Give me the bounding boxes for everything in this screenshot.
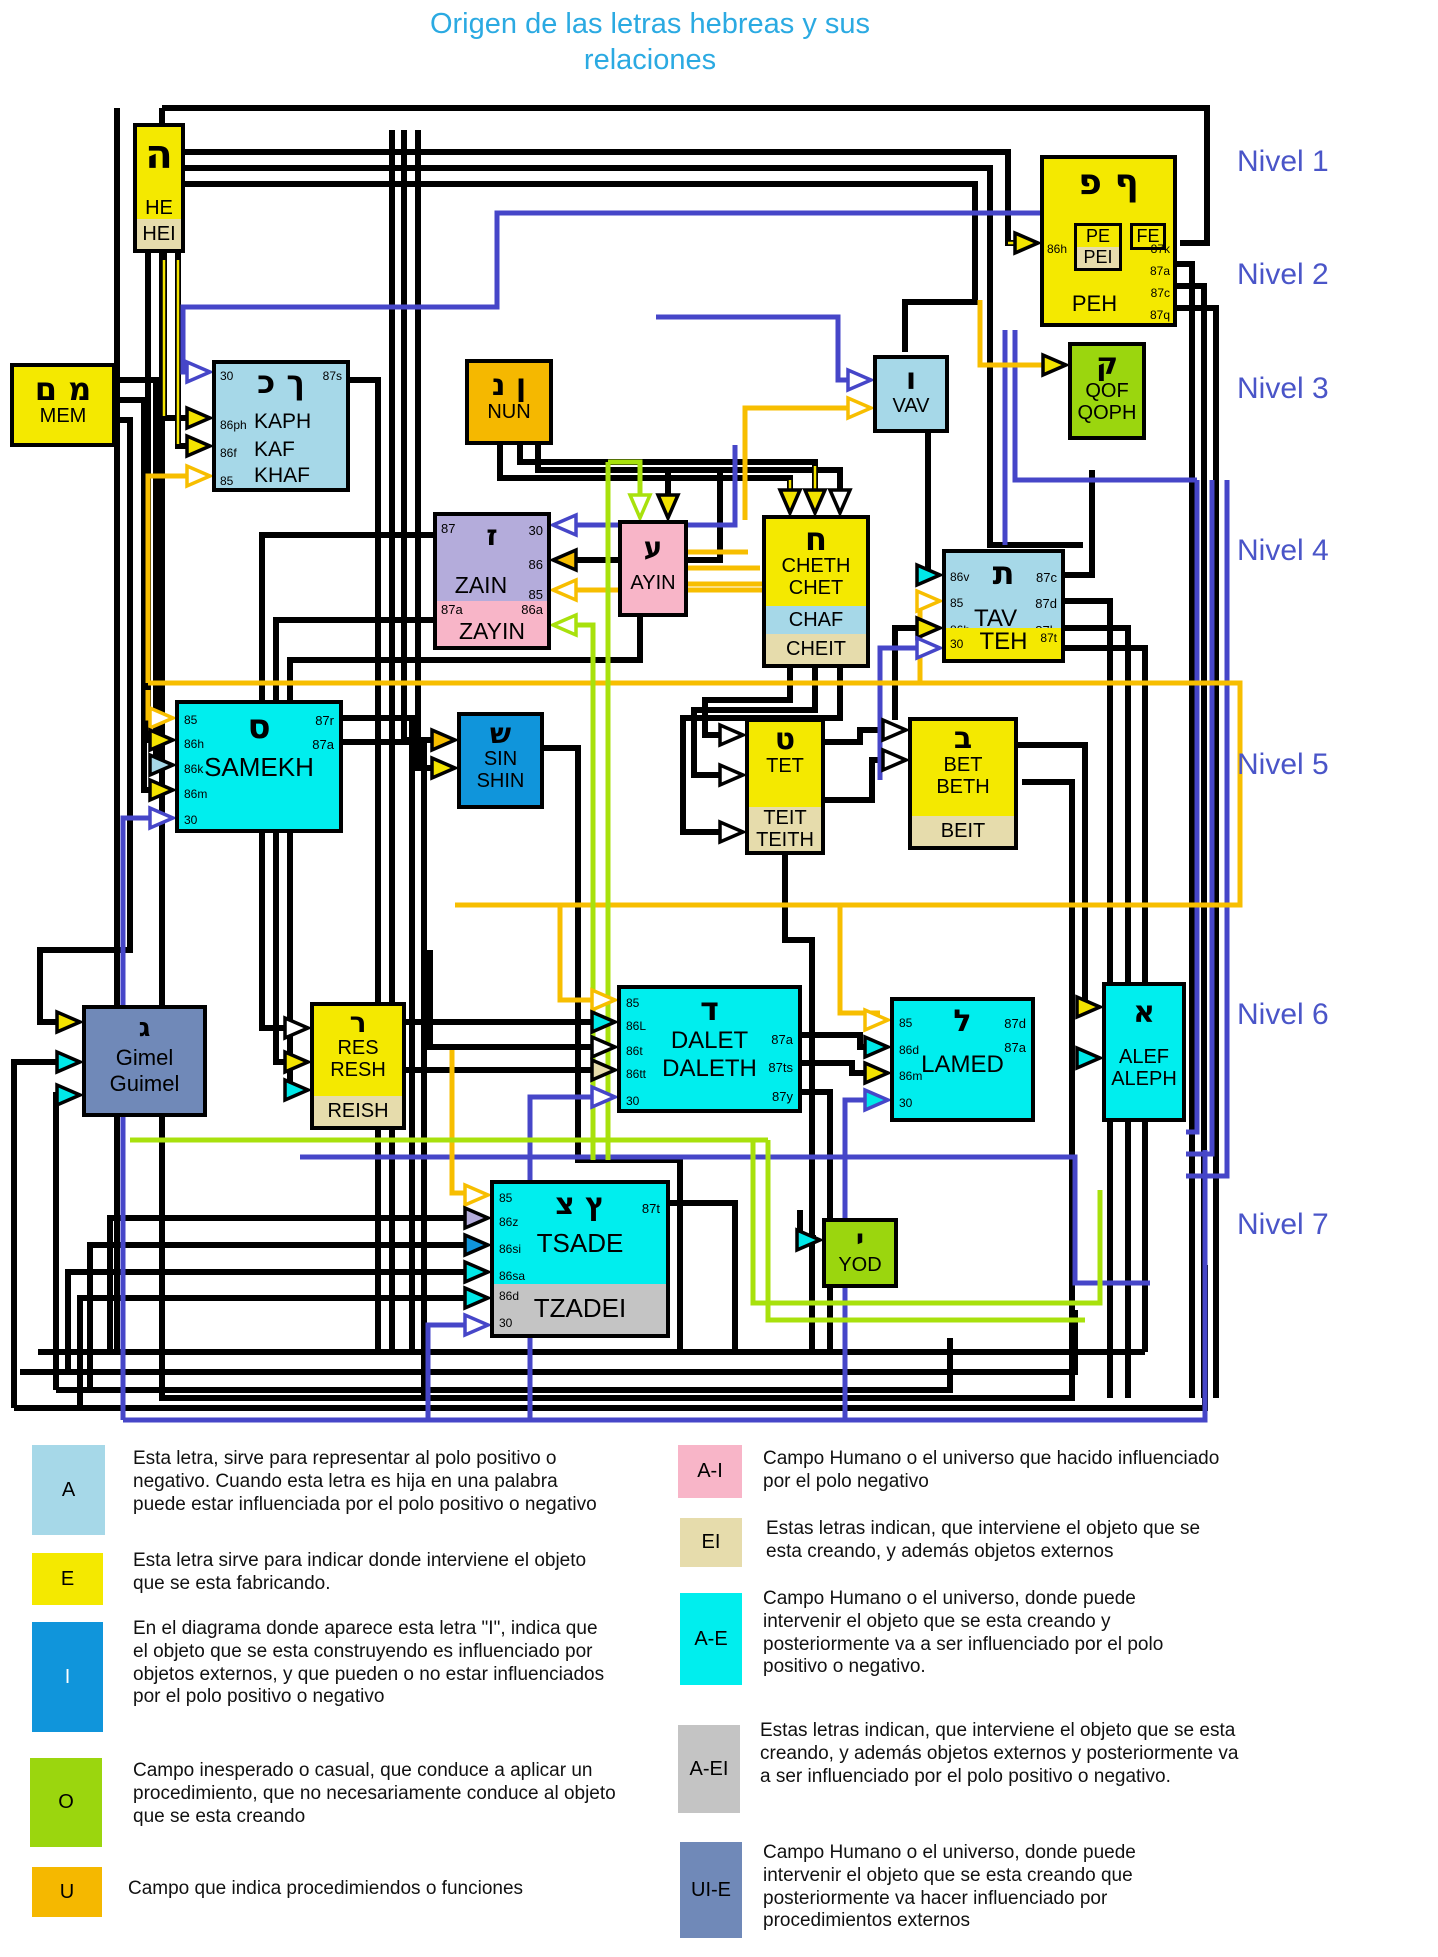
hebrew-letter-dalet: ד — [621, 989, 798, 1025]
hebrew-letter-res: ר — [314, 1006, 402, 1037]
wire-arrowhead — [805, 490, 825, 513]
hebrew-letters-tsade: צ ץ — [494, 1184, 666, 1220]
legend-key-uie: UI-E — [691, 1879, 731, 1902]
peh-output-87q: 87q — [1150, 309, 1170, 321]
wire-arrowhead — [720, 822, 743, 842]
box-tet: ט TET TEIT TEITH — [745, 718, 825, 855]
nun-name: NUN — [469, 401, 549, 423]
kaph-name-1: KAPH — [254, 410, 311, 434]
box-tav: 86v 85 86h ת TAV 87c 87d 87b 30 TEH 87t — [942, 549, 1065, 663]
box-bet: ב BET BETH BEIT — [908, 717, 1018, 850]
dalet-output-87ts: 87ts — [768, 1061, 793, 1074]
zain-output-87a: 87a — [441, 603, 463, 616]
tsade-input-30: 30 — [499, 1317, 512, 1329]
legend-swatch-aei: A-EI — [678, 1725, 740, 1813]
wire-arrowhead — [57, 1012, 80, 1032]
kaph-input-30: 30 — [220, 370, 233, 382]
tsade-input-86d: 86d — [499, 1290, 519, 1302]
wire-arrowhead — [592, 1087, 615, 1107]
legend-text-uie: Campo Humano o el universo, donde puede … — [763, 1842, 1203, 1933]
level-label-6: Nivel 6 — [1237, 998, 1329, 1032]
level-label-7: Nivel 7 — [1237, 1208, 1329, 1242]
tav-input-85: 85 — [950, 597, 963, 609]
wire-arrowhead — [285, 1052, 308, 1072]
hebrew-letter-vav: ו — [877, 359, 945, 395]
kaph-name-2: KAF — [254, 438, 295, 462]
qof-name-2: QOPH — [1072, 402, 1142, 424]
hebrew-letter-gimel: ג — [86, 1009, 203, 1041]
samekh-input-85: 85 — [184, 714, 197, 726]
vav-name: VAV — [877, 395, 945, 417]
tav-output-87d: 87d — [1035, 597, 1057, 610]
box-he: ה HE HEI — [133, 123, 185, 253]
legend-swatch-u: U — [32, 1867, 102, 1917]
wire-arrowhead — [187, 436, 210, 456]
tet-alt-teit: TEIT — [749, 807, 821, 829]
box-qof: ק QOF QOPH — [1068, 342, 1146, 440]
legend-text-e: Esta letra sirve para indicar donde inte… — [133, 1550, 608, 1596]
he-name: HE — [137, 197, 181, 219]
wire-arrowhead — [848, 370, 871, 390]
wire-arrowhead — [432, 730, 455, 750]
wire-arrowhead — [1077, 1048, 1100, 1068]
box-cheth: ח CHETH CHET CHAF CHEIT — [762, 515, 870, 668]
wire-arrowhead — [553, 615, 576, 635]
wire-arrowhead — [592, 1012, 615, 1032]
wire-arrowhead — [865, 1037, 888, 1057]
wire-arrowhead — [187, 408, 210, 428]
wire-arrowhead — [780, 490, 800, 513]
hebrew-letter-tet: ט — [749, 722, 821, 755]
ayin-name: AYIN — [622, 572, 684, 594]
hebrew-letter-qof: ק — [1072, 346, 1142, 380]
legend-text-ei: Estas letras indican, que interviene el … — [766, 1518, 1241, 1564]
box-alef: א ALEF ALEPH — [1102, 982, 1186, 1122]
wire-arrowhead — [465, 1288, 488, 1308]
dalet-output-87a: 87a — [771, 1033, 793, 1046]
legend-swatch-o: O — [30, 1758, 102, 1847]
legend-swatch-ai: A-I — [678, 1445, 742, 1498]
kaph-input-85: 85 — [220, 475, 233, 487]
box-dalet: 85 86L 86t 86tt 30 ד DALET DALETH 87a 87… — [617, 985, 802, 1113]
tsade-output-87t: 87t — [642, 1202, 660, 1215]
dalet-input-86L: 86L — [626, 1020, 646, 1032]
wire-arrowhead — [187, 466, 210, 486]
qof-name-1: QOF — [1072, 380, 1142, 402]
legend-key-ai: A-I — [697, 1460, 723, 1483]
legend-text-aei: Estas letras indican, que interviene el … — [760, 1720, 1240, 1788]
wire-arrowhead — [553, 580, 576, 600]
legend-text-o: Campo inesperado o casual, que conduce a… — [133, 1760, 623, 1828]
wire-arrowhead — [465, 1185, 488, 1205]
wire-arrowhead — [720, 765, 743, 785]
hebrew-letter-alef: א — [1106, 986, 1182, 1028]
level-label-4: Nivel 4 — [1237, 534, 1329, 568]
cheth-alt-chaf: CHAF — [766, 606, 866, 634]
legend-key-u: U — [60, 1881, 74, 1904]
wire-arrowhead — [285, 1080, 308, 1100]
box-vav: ו VAV — [873, 355, 949, 433]
peh-inner-pe-pei: PE PEI — [1074, 223, 1122, 271]
kaph-output-87s: 87s — [323, 370, 342, 382]
peh-input-86h: 86h — [1047, 243, 1067, 255]
peh-inner-pei: PEI — [1077, 247, 1119, 268]
box-gimel: ג Gimel Guimel — [82, 1005, 207, 1117]
legend-key-e: E — [61, 1568, 74, 1591]
kaph-input-86f: 86f — [220, 447, 237, 459]
wire-arrowhead — [917, 638, 940, 658]
tet-name: TET — [749, 755, 821, 777]
box-ayin: ע AYIN — [618, 520, 688, 617]
samekh-input-86k: 86k — [184, 763, 203, 775]
peh-output-87c: 87c — [1151, 287, 1170, 299]
zain-input-30: 30 — [529, 524, 543, 537]
wire-arrowhead — [465, 1208, 488, 1228]
zain-name: ZAIN — [437, 572, 525, 599]
legend-swatch-ei: EI — [680, 1518, 742, 1567]
alef-name-2: ALEPH — [1106, 1068, 1182, 1090]
level-label-3: Nivel 3 — [1237, 372, 1329, 406]
tet-alt-section: TEIT TEITH — [749, 807, 821, 851]
zain-input-86: 86 — [529, 558, 543, 571]
alef-name-1: ALEF — [1106, 1046, 1182, 1068]
lamed-input-30: 30 — [899, 1097, 912, 1109]
title-line1: Origen de las letras hebreas y sus — [250, 6, 1050, 42]
legend-key-a: A — [62, 1479, 75, 1502]
cheth-alt-cheit: CHEIT — [766, 634, 866, 664]
wire-arrowhead — [57, 1052, 80, 1072]
tsade-input-86z: 86z — [499, 1216, 518, 1228]
wire-arrowhead — [592, 1037, 615, 1057]
wire-arrowhead — [285, 1018, 308, 1038]
dalet-input-85: 85 — [626, 997, 639, 1009]
legend-key-ei: EI — [702, 1531, 721, 1554]
legend-swatch-a: A — [32, 1445, 105, 1535]
wire-arrowhead — [883, 750, 906, 770]
legend-key-aei: A-EI — [690, 1758, 729, 1781]
res-alt-reish: REISH — [314, 1096, 402, 1126]
samekh-input-86h: 86h — [184, 738, 204, 750]
bet-name-2: BETH — [912, 776, 1014, 798]
legend-swatch-uie: UI-E — [680, 1842, 742, 1938]
hebrew-letters-nun: נ ן — [469, 363, 549, 401]
box-res: ר RES RESH REISH — [310, 1002, 406, 1130]
legend-swatch-ae: A-E — [680, 1593, 742, 1685]
hebrew-letter-cheth: ח — [766, 519, 866, 555]
wire-arrowhead — [917, 618, 940, 638]
hebrew-letter-he: ה — [137, 127, 181, 197]
diagram-page: Origen de las letras hebreas y sus relac… — [0, 0, 1438, 1957]
tet-alt-teith: TEITH — [749, 829, 821, 851]
wire-arrowhead — [865, 1063, 888, 1083]
wire-arrowhead — [1015, 233, 1038, 253]
wire-arrowhead — [720, 725, 743, 745]
wire-arrowhead — [592, 1060, 615, 1080]
tav-output-87t: 87t — [1040, 632, 1057, 644]
wire-arrowhead — [883, 720, 906, 740]
hebrew-letter-ayin: ע — [622, 524, 684, 562]
legend-text-a: Esta letra, sirve para representar al po… — [133, 1448, 608, 1516]
mem-name: MEM — [14, 405, 112, 427]
lamed-input-85: 85 — [899, 1017, 912, 1029]
level-label-1: Nivel 1 — [1237, 145, 1329, 179]
tsade-input-85: 85 — [499, 1192, 512, 1204]
peh-output-87k: 87k — [1151, 243, 1170, 255]
peh-name: PEH — [1044, 291, 1145, 317]
lamed-output-87d: 87d — [1004, 1017, 1026, 1030]
wire-arrowhead — [57, 1085, 80, 1105]
box-tsade: 85 86z 86si 86sa צ ץ 87t TSADE 86d 30 TZ… — [490, 1180, 670, 1338]
wire-arrowhead — [797, 1230, 820, 1250]
dalet-input-86tt: 86tt — [626, 1068, 646, 1080]
sin-name-2: SHIN — [461, 770, 540, 792]
legend-text-ai: Campo Humano o el universo que hacido in… — [763, 1448, 1223, 1494]
wire-arrowhead — [187, 362, 210, 382]
tav-input-30: 30 — [950, 638, 963, 650]
kaph-name-3: KHAF — [254, 464, 310, 488]
lamed-input-86m: 86m — [899, 1070, 922, 1082]
peh-output-87a: 87a — [1150, 265, 1170, 277]
hebrew-letters-mem: ם מ — [14, 367, 112, 405]
zain-label-87: 87 — [441, 522, 455, 535]
peh-inner-pe: PE — [1077, 226, 1119, 247]
tsade-alt-section: 86d 30 TZADEI — [494, 1284, 666, 1334]
box-lamed: 85 86d 86m 30 ל LAMED 87d 87a — [890, 997, 1035, 1122]
box-mem: ם מ MEM — [10, 363, 116, 447]
dalet-output-87y: 87y — [772, 1090, 793, 1103]
box-peh: פ ף 86h PE PEI FE 87k 87a 87c 87q PEH — [1040, 155, 1177, 327]
legend-text-ae: Campo Humano o el universo, donde puede … — [763, 1588, 1193, 1679]
level-label-5: Nivel 5 — [1237, 748, 1329, 782]
tsade-input-86si: 86si — [499, 1243, 521, 1255]
wire-arrowhead — [465, 1262, 488, 1282]
box-yod: י YOD — [822, 1218, 898, 1288]
hebrew-letters-peh: פ ף — [1044, 159, 1173, 201]
zain-input-85: 85 — [529, 588, 543, 601]
samekh-output-87a: 87a — [312, 738, 334, 751]
legend-text-i: En el diagrama donde aparece esta letra … — [133, 1618, 613, 1709]
box-samekh: 85 86h 86k 86m 30 ס SAMEKH 87r 87a — [175, 700, 343, 833]
wire-arrowhead — [630, 495, 650, 518]
box-zain: 87 ז 30 86 85 ZAIN 87a 86a ZAYIN — [433, 512, 551, 650]
samekh-input-30: 30 — [184, 814, 197, 826]
wire-arrowhead — [553, 550, 576, 570]
wire-arrowhead — [592, 990, 615, 1010]
lamed-output-87a: 87a — [1004, 1041, 1026, 1054]
dalet-input-30: 30 — [626, 1095, 639, 1107]
samekh-input-86m: 86m — [184, 788, 207, 800]
wire-arrowhead — [432, 758, 455, 778]
res-name-2: RESH — [314, 1059, 402, 1081]
page-title: Origen de las letras hebreas y sus relac… — [250, 6, 1050, 79]
level-label-2: Nivel 2 — [1237, 258, 1329, 292]
hebrew-letter-yod: י — [826, 1222, 894, 1254]
tav-output-87c: 87c — [1036, 571, 1057, 584]
cheth-name-1: CHETH — [766, 555, 866, 577]
zain-input-86a: 86a — [521, 603, 543, 616]
wire-arrowhead — [917, 591, 940, 611]
legend-key-o: O — [58, 1791, 74, 1814]
legend-swatch-e: E — [32, 1553, 103, 1605]
wire-arrowhead — [465, 1235, 488, 1255]
hebrew-letter-sin: ש — [461, 716, 540, 748]
box-sin: ש SIN SHIN — [457, 712, 544, 809]
legend-key-ae: A-E — [694, 1628, 727, 1651]
kaph-input-86ph: 86ph — [220, 419, 247, 431]
cheth-name-2: CHET — [766, 577, 866, 599]
wire-arrowhead — [553, 515, 576, 535]
samekh-output-87r: 87r — [315, 714, 334, 727]
title-line2: relaciones — [250, 42, 1050, 78]
dalet-input-86t: 86t — [626, 1045, 643, 1057]
gimel-name-2: Guimel — [86, 1071, 203, 1097]
tsade-input-86sa: 86sa — [499, 1270, 525, 1282]
zain-alt-name: ZAYIN — [437, 618, 547, 645]
legend-key-i: I — [65, 1666, 71, 1689]
legend-swatch-i: I — [32, 1622, 103, 1732]
res-name-1: RES — [314, 1037, 402, 1059]
tav-input-86v: 86v — [950, 571, 969, 583]
tsade-alt-name: TZADEI — [494, 1284, 666, 1332]
box-kaph: 30 87s כ ך 86ph KAPH 86f KAF 85 KHAF — [212, 360, 350, 492]
wire-arrowhead — [1043, 355, 1066, 375]
wire-arrowhead — [658, 495, 678, 518]
yod-name: YOD — [826, 1254, 894, 1276]
tav-teh-section: 30 TEH 87t — [946, 628, 1061, 659]
sin-name-1: SIN — [461, 748, 540, 770]
wire-arrowhead — [848, 398, 871, 418]
wire-arrowhead — [830, 490, 850, 513]
box-nun: נ ן NUN — [465, 359, 553, 445]
wire-arrowhead — [1077, 997, 1100, 1017]
bet-alt-beit: BEIT — [912, 816, 1014, 846]
wire-arrowhead — [465, 1315, 488, 1335]
legend-text-u: Campo que indica procedimiendos o funcio… — [128, 1878, 608, 1901]
zain-alt-section: 87a 86a ZAYIN — [437, 601, 547, 646]
wire-arrowhead — [865, 1090, 888, 1110]
lamed-input-86d: 86d — [899, 1044, 919, 1056]
bet-name-1: BET — [912, 754, 1014, 776]
gimel-name-1: Gimel — [86, 1045, 203, 1071]
hebrew-letter-bet: ב — [912, 721, 1014, 754]
he-alt-name: HEI — [137, 219, 181, 249]
